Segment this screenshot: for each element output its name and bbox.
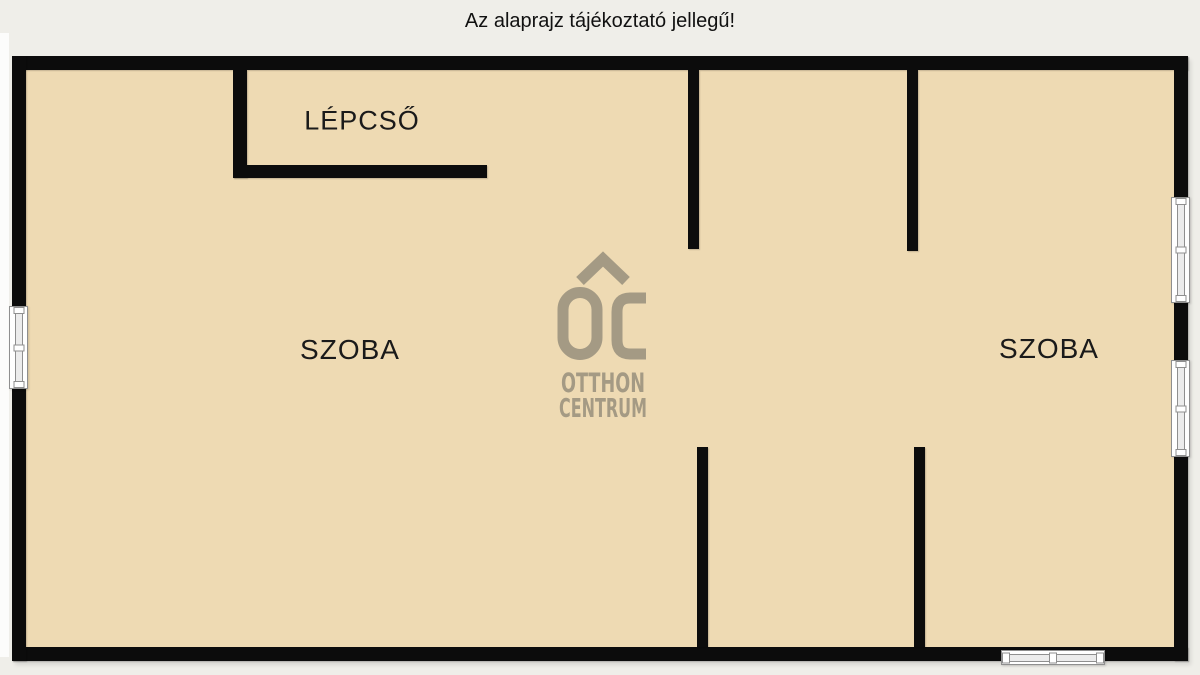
- window-separator: [13, 344, 24, 351]
- roof-chevron-icon: [580, 259, 626, 281]
- room-label-szoba: SZOBA: [999, 333, 1099, 365]
- window-separator: [1049, 652, 1057, 663]
- window-separator: [13, 307, 24, 314]
- wall-upper-right: [907, 70, 918, 251]
- wall-lower-middle: [697, 447, 708, 647]
- window-separator: [1175, 198, 1186, 205]
- floorplan: OTTHON CENTRUM LÉPCSŐSZOBASZOBA: [0, 0, 1200, 675]
- window-separator: [1002, 652, 1010, 663]
- page: Az alaprajz tájékoztató jellegű! OTTHON …: [0, 0, 1200, 675]
- room-label-szoba: SZOBA: [300, 334, 400, 366]
- wall-stair-vertical: [233, 70, 247, 178]
- logo-letter-o: [563, 293, 597, 355]
- window-separator: [1175, 449, 1186, 456]
- wall-upper-middle: [688, 70, 699, 249]
- otthon-centrum-logo-icon: OTTHON CENTRUM: [543, 245, 663, 425]
- window-separator: [1096, 652, 1104, 663]
- wall-stair-horizontal: [233, 165, 487, 178]
- window-separator: [1175, 361, 1186, 368]
- wall-outer-top: [12, 56, 1188, 70]
- window-separator: [1175, 295, 1186, 302]
- window-separator: [13, 381, 24, 388]
- logo-letter-c: [617, 298, 646, 354]
- logo-text-centrum: CENTRUM: [559, 394, 647, 424]
- watermark-logo: OTTHON CENTRUM: [543, 245, 663, 425]
- window-separator: [1175, 405, 1186, 412]
- window-right-upper: [1171, 197, 1190, 303]
- window-separator: [1175, 247, 1186, 254]
- wall-lower-right: [914, 447, 925, 647]
- room-label-lépcső: LÉPCSŐ: [304, 106, 420, 137]
- window-left: [9, 306, 28, 389]
- window-right-lower: [1171, 360, 1190, 457]
- window-bottom: [1001, 650, 1105, 665]
- wall-outer-right: [1174, 56, 1188, 661]
